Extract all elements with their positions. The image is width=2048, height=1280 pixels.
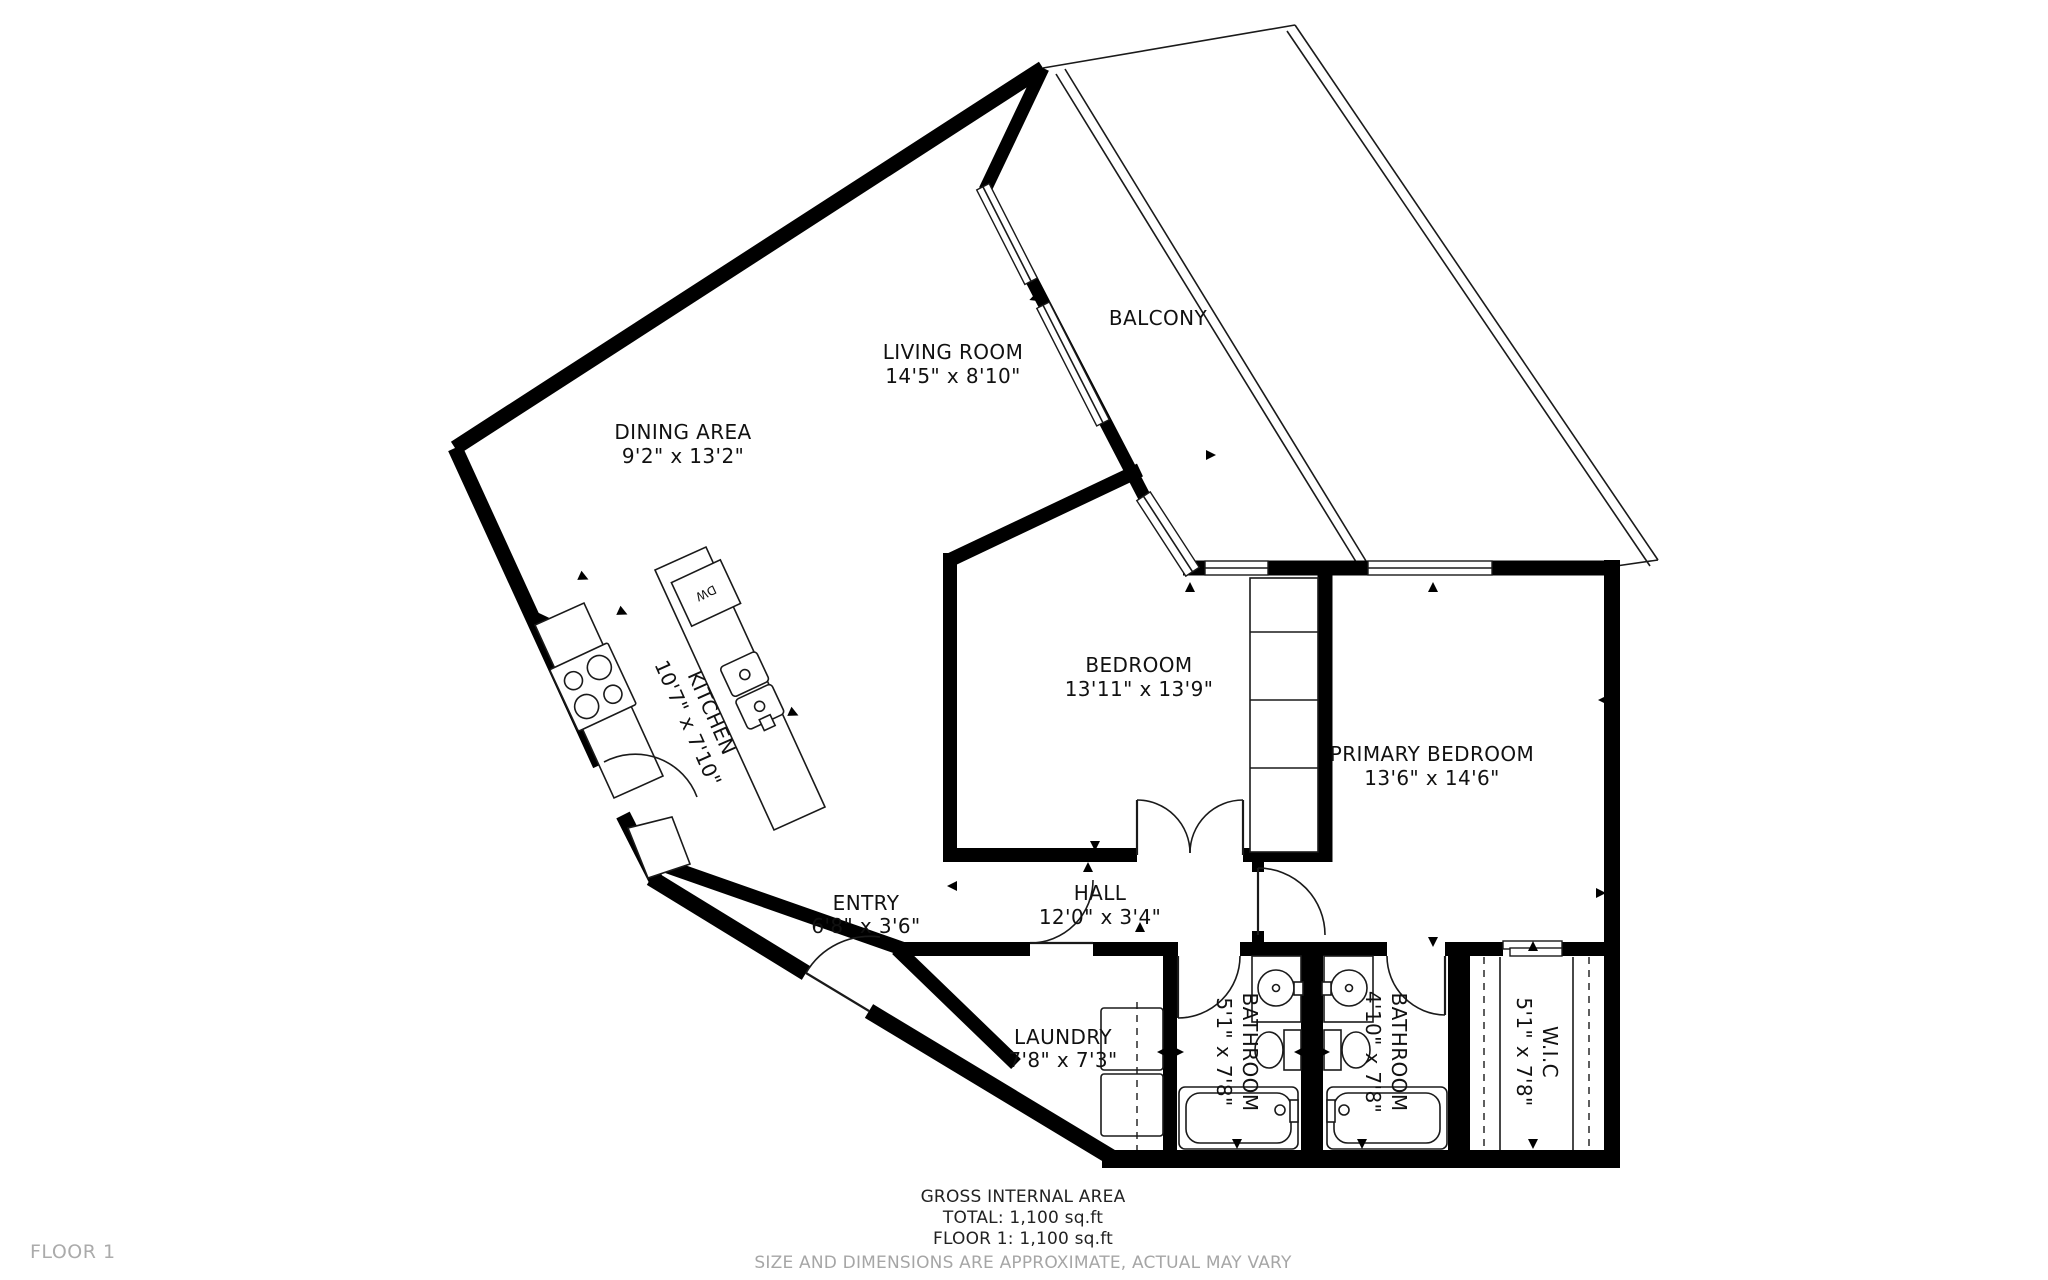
bathroom1-label: BATHROOM xyxy=(1238,993,1262,1112)
dining-area-dims: 9'2" x 13'2" xyxy=(622,444,744,468)
balcony-label: BALCONY xyxy=(1109,306,1208,330)
balcony-door-window xyxy=(1137,492,1199,576)
footer: GROSS INTERNAL AREA TOTAL: 1,100 sq.ft F… xyxy=(30,1187,1292,1273)
bathroom2-label: BATHROOM xyxy=(1387,993,1411,1112)
entry-door xyxy=(806,936,880,1011)
hall-label: HALL xyxy=(1074,881,1127,905)
sink xyxy=(1258,970,1294,1006)
bedroom-dims: 13'11" x 13'9" xyxy=(1065,677,1214,701)
living-room-label: LIVING ROOM xyxy=(883,340,1023,364)
hall-end-door xyxy=(1258,868,1325,935)
bathroom1-dims: 5'1" x 7'8" xyxy=(1212,997,1236,1106)
primary-bedroom-dims: 13'6" x 14'6" xyxy=(1364,766,1500,790)
bedroom-window xyxy=(1205,561,1268,575)
entry-dims: 6'8" x 3'6" xyxy=(811,914,920,938)
wic-dims: 5'1" x 7'8" xyxy=(1512,997,1536,1106)
entry-label: ENTRY xyxy=(833,891,900,915)
primary-bedroom-label: PRIMARY BEDROOM xyxy=(1330,742,1534,766)
gross-internal-area-title: GROSS INTERNAL AREA xyxy=(921,1187,1126,1207)
wic-label-group: W.I.C 5'1" x 7'8" xyxy=(1512,997,1562,1106)
bedroom-double-door xyxy=(1137,800,1243,855)
laundry-dims: 7'8" x 7'3" xyxy=(1008,1048,1117,1072)
floor-plan: DW xyxy=(0,0,2048,1280)
bathroom2-dims: 4'10" x 7'8" xyxy=(1361,991,1385,1113)
bedroom-closet xyxy=(1250,578,1318,852)
wic-label: W.I.C xyxy=(1538,1026,1562,1078)
dryer xyxy=(1101,1074,1163,1136)
bedroom-label: BEDROOM xyxy=(1085,653,1192,677)
floor1-area: FLOOR 1: 1,100 sq.ft xyxy=(933,1229,1113,1249)
primary-bedroom-window xyxy=(1368,561,1492,575)
total-area: TOTAL: 1,100 sq.ft xyxy=(942,1208,1103,1228)
living-room-dims: 14'5" x 8'10" xyxy=(885,364,1021,388)
bathtub xyxy=(1327,1087,1447,1149)
hall-dims: 12'0" x 3'4" xyxy=(1039,905,1161,929)
dining-area-label: DINING AREA xyxy=(614,420,751,444)
disclaimer: SIZE AND DIMENSIONS ARE APPROXIMATE, ACT… xyxy=(754,1253,1292,1273)
laundry-label: LAUNDRY xyxy=(1014,1025,1112,1049)
floor-label: FLOOR 1 xyxy=(30,1241,116,1263)
